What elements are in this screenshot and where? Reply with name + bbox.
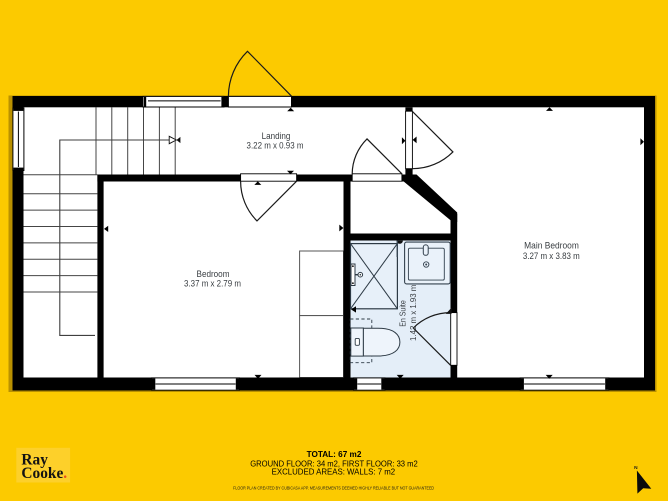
svg-text:Main Bedroom: Main Bedroom	[524, 239, 579, 250]
svg-text:3.27 m x 3.83 m: 3.27 m x 3.83 m	[523, 250, 580, 261]
svg-text:En Suite: En Suite	[399, 300, 408, 327]
svg-text:N: N	[634, 465, 638, 471]
svg-text:TOTAL: 67 m2: TOTAL: 67 m2	[307, 450, 362, 459]
svg-text:3.22 m x 0.93 m: 3.22 m x 0.93 m	[247, 140, 304, 151]
svg-text:3.37 m x 2.79 m: 3.37 m x 2.79 m	[184, 278, 241, 289]
svg-text:Cooke.: Cooke.	[21, 465, 67, 482]
svg-text:FLOOR PLAN CREATED BY CUBICASA: FLOOR PLAN CREATED BY CUBICASA APP. MEAS…	[233, 486, 434, 492]
svg-text:EXCLUDED AREAS: WALLS: 7 m2: EXCLUDED AREAS: WALLS: 7 m2	[272, 468, 396, 477]
svg-text:1.42 m x 1.93 m: 1.42 m x 1.93 m	[408, 285, 418, 341]
